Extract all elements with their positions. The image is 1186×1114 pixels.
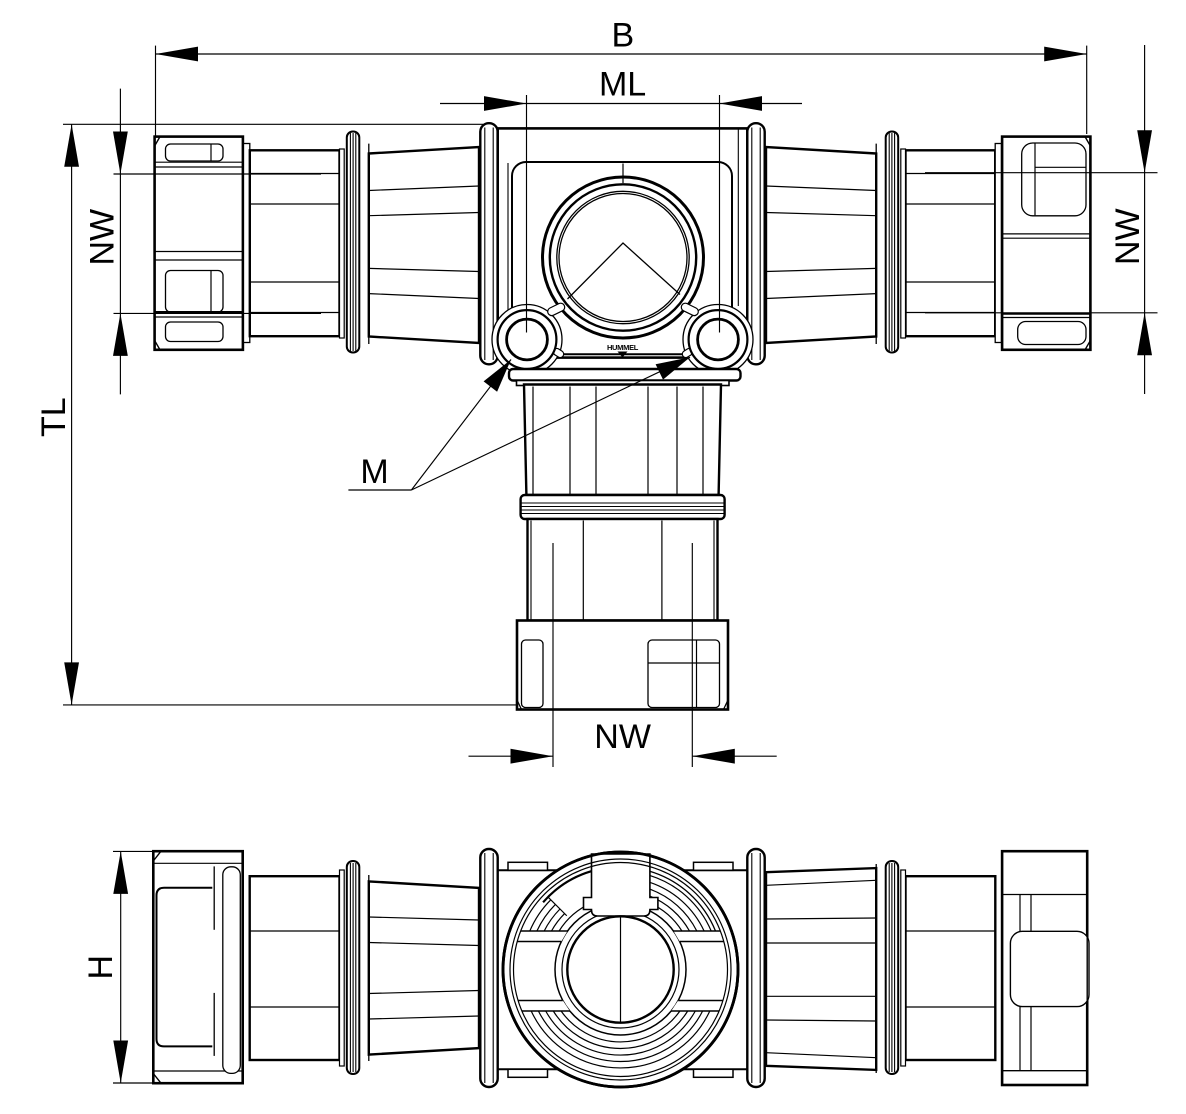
svg-text:TL: TL [35,397,73,437]
svg-text:HUMMEL: HUMMEL [607,343,639,352]
svg-text:NW: NW [1109,208,1147,265]
svg-text:B: B [611,17,634,55]
svg-text:H: H [82,955,120,980]
svg-text:M: M [360,453,388,491]
svg-text:NW: NW [83,209,121,266]
svg-text:ML: ML [599,66,646,104]
svg-text:NW: NW [594,718,651,756]
